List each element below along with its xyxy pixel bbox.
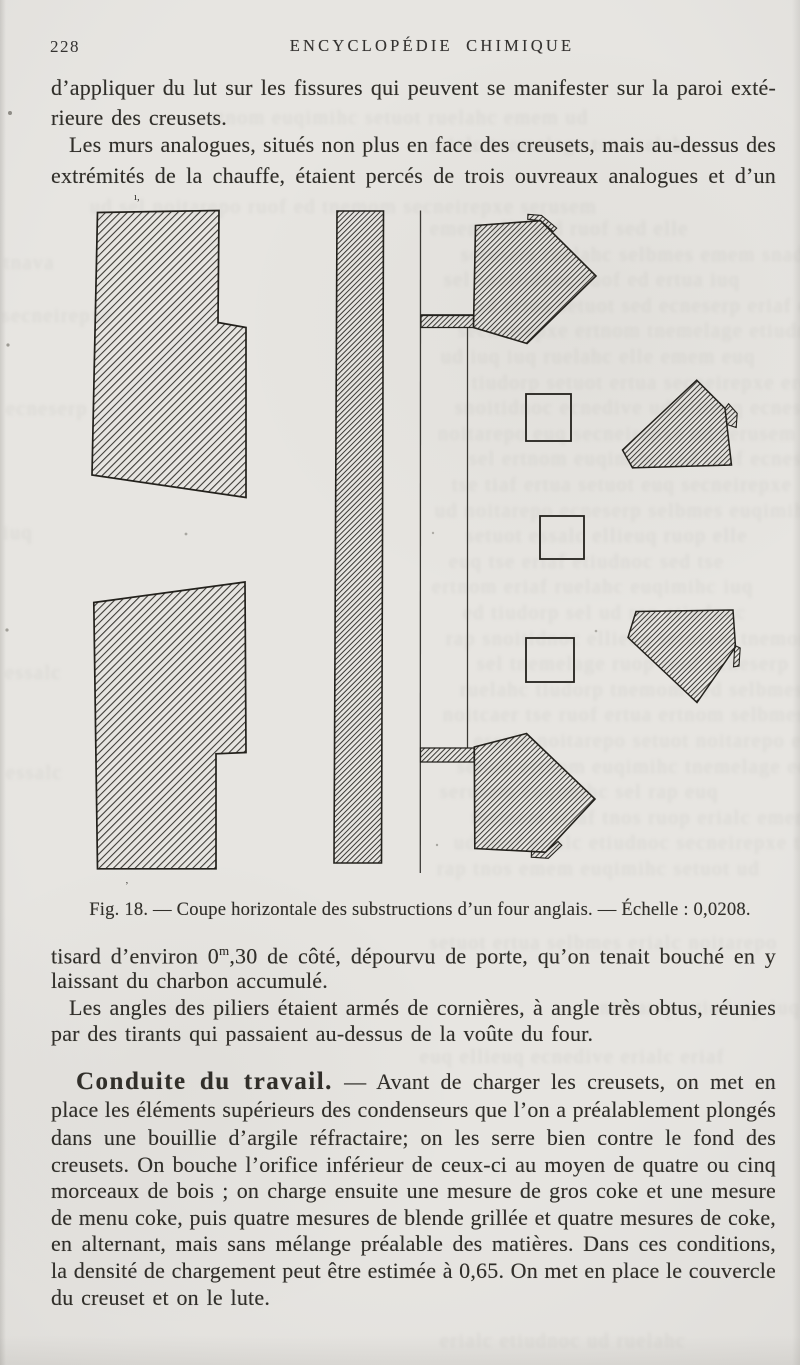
svg-text:’: ’ [125, 880, 129, 892]
